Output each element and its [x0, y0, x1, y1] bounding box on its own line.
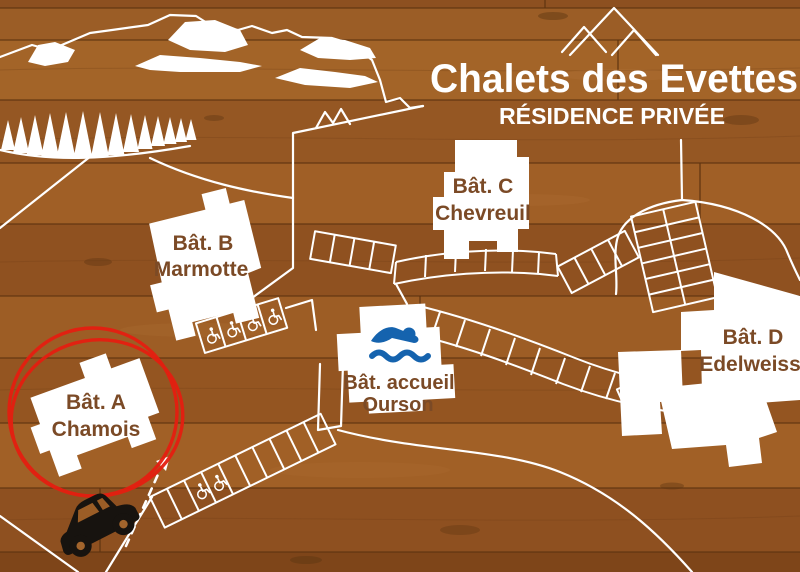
sign-subtitle: RÉSIDENCE PRIVÉE	[499, 102, 725, 129]
building-accueil-name: Bât. accueil	[343, 372, 454, 394]
sign-title: Chalets des Evettes	[430, 57, 798, 101]
building-d-label: Edelweiss	[699, 353, 800, 376]
building-c-name: Bât. C	[453, 175, 514, 198]
building-b-name: Bât. B	[173, 232, 234, 255]
building-a-label: Chamois	[52, 418, 141, 441]
building-accueil-label: Ourson	[362, 394, 433, 416]
building-b-label: Marmotte	[154, 258, 249, 281]
map-canvas: Chalets des Evettes RÉSIDENCE PRIVÉE	[0, 0, 800, 572]
resort-map-sign: Chalets des Evettes RÉSIDENCE PRIVÉE	[0, 0, 800, 572]
building-a-name: Bât. A	[66, 391, 126, 414]
building-d-name: Bât. D	[723, 326, 784, 349]
building-c-label: Chevreuil	[435, 202, 531, 225]
